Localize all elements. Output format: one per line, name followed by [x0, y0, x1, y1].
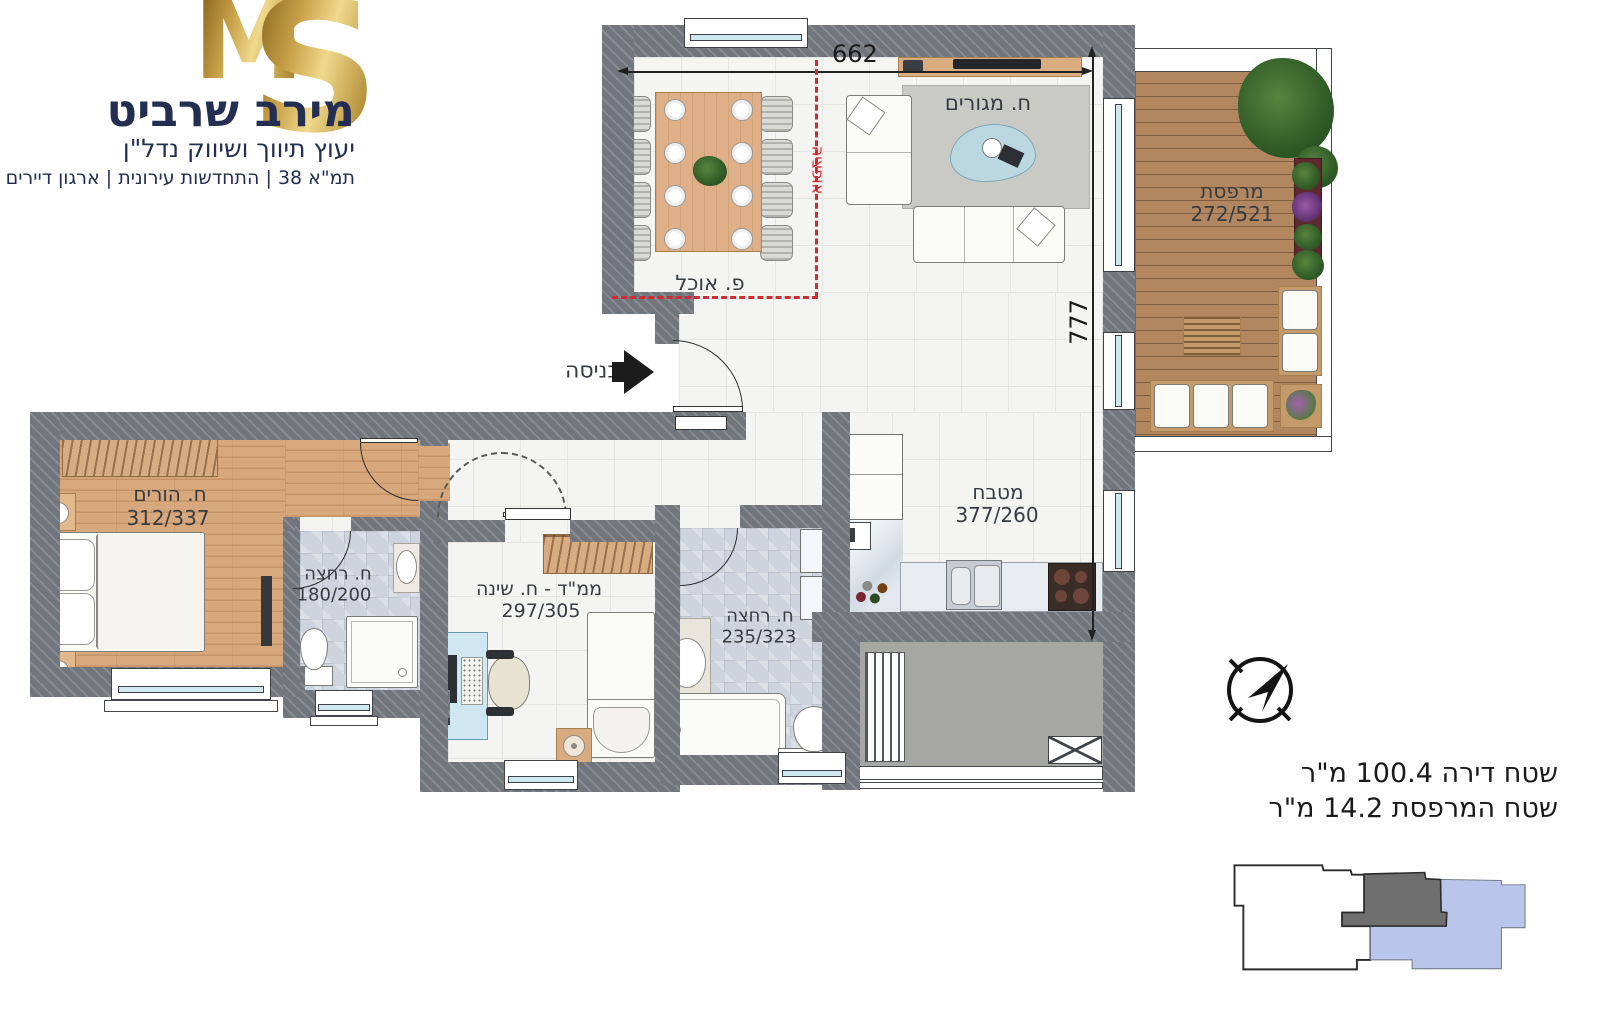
- plate: [731, 185, 753, 207]
- plate: [664, 142, 686, 164]
- planter-green-1: [1292, 162, 1320, 190]
- toilet-bowl: [300, 628, 328, 670]
- room-label-bath2: ח. רחצה: [726, 606, 794, 627]
- window-sill: [104, 700, 278, 712]
- room-label-kitchen: מטבח: [972, 480, 1023, 504]
- wall-segment: [30, 412, 60, 697]
- desk-chair: [488, 656, 530, 710]
- dining-chair: [760, 225, 793, 261]
- parents-door-leaf: [360, 438, 418, 443]
- brand-tagline: יעוץ תיווך ושיווק נדל"ן: [123, 134, 355, 163]
- option-label: אופציה: [809, 146, 828, 195]
- kitchen-sink: [946, 560, 1002, 610]
- entrance-arrow-head: [624, 350, 654, 394]
- compass-icon: [1222, 652, 1298, 728]
- sofa-cushion: [1232, 384, 1268, 428]
- balcony-area-text: שטח המרפסת 14.2 מ"ר: [1268, 793, 1558, 824]
- dimension-arrow: [617, 67, 628, 75]
- room-dims-bath1: 180/200: [297, 585, 372, 606]
- location-minimap: [1226, 852, 1532, 982]
- room-label-parents: ח. הורים: [133, 482, 206, 506]
- stove: [1048, 563, 1096, 611]
- brand-name: מירב שרביט: [107, 84, 356, 137]
- tub-rim: [668, 699, 780, 761]
- window: [1103, 490, 1135, 572]
- wall-segment: [351, 517, 423, 531]
- window: [684, 18, 808, 48]
- wall-segment: [30, 412, 746, 440]
- entrance-label: כניסה: [565, 359, 619, 384]
- side-table: [556, 728, 592, 764]
- window: [778, 752, 846, 784]
- planter-green-2: [1294, 224, 1322, 250]
- fridge-door-split: [844, 474, 902, 475]
- wall-segment: [812, 612, 1135, 642]
- room-dims-kitchen: 377/260: [955, 503, 1038, 527]
- room-label-living: ח. מגורים: [945, 91, 1031, 115]
- floor-entry-zone: [679, 292, 1103, 412]
- dining-chair: [760, 182, 793, 218]
- table-centerpiece-plant: [693, 156, 727, 186]
- burner: [1055, 590, 1067, 602]
- entry-door-leaf: [673, 406, 743, 412]
- blanket: [593, 707, 650, 753]
- roof-parapet: [845, 766, 1103, 780]
- roof-ladder: [865, 652, 905, 762]
- dimension-height-label: 777: [1065, 299, 1093, 345]
- brand-services: תמ"א 38 | התחדשות עירונית | ארגון דיירים: [6, 167, 355, 189]
- planter-green-3: [1292, 250, 1324, 280]
- chair-armrest: [486, 650, 514, 659]
- window: [1103, 98, 1135, 272]
- dining-chair: [760, 139, 793, 175]
- wall-segment: [655, 505, 680, 770]
- dining-chair: [760, 96, 793, 132]
- apartment-area-text: שטח דירה 100.4 מ"ר: [1301, 758, 1558, 789]
- dimension-line-width: [625, 71, 1085, 73]
- sink-basin: [951, 567, 971, 605]
- room-dims-balcony: 272/521: [1190, 202, 1273, 226]
- bed-fold: [588, 699, 654, 700]
- sofa-cushion: [1193, 384, 1229, 428]
- floorplan-page: M S מירב שרביט יעוץ תיווך ושיווק נדל"ן ת…: [0, 0, 1600, 1029]
- wall-tv: [261, 576, 272, 646]
- chair-armrest: [486, 707, 514, 716]
- dimension-arrow: [1088, 46, 1096, 57]
- window: [504, 760, 578, 790]
- option-boundary-horizontal: [612, 296, 818, 299]
- roof-skylight: [1048, 736, 1102, 764]
- burner: [1054, 569, 1070, 585]
- balcony-coffee-table: [1183, 316, 1241, 356]
- compass-north-arrow: [1248, 664, 1288, 712]
- window: [1103, 332, 1135, 410]
- sofa-seam: [964, 207, 965, 262]
- bowl-center: [571, 743, 577, 749]
- plate: [664, 185, 686, 207]
- window: [111, 668, 271, 700]
- room-label-dining: פ. אוכל: [675, 271, 744, 295]
- shower-drain: [398, 668, 407, 677]
- balcony-parapet-bottom: [1123, 436, 1332, 452]
- room-label-bath1: ח. רחצה: [304, 564, 372, 585]
- sofa-cushion: [1282, 290, 1318, 330]
- safe-room-door-leaf: [505, 508, 571, 520]
- burner: [1075, 571, 1087, 583]
- single-bed: [587, 612, 655, 758]
- tv: [953, 59, 1041, 69]
- sink: [396, 550, 417, 584]
- plate: [731, 228, 753, 250]
- room-label-safe-bedroom: ממ"ד - ח. שינה: [476, 578, 602, 600]
- blanket: [96, 534, 204, 649]
- wall-segment: [570, 520, 660, 542]
- fridge: [843, 434, 903, 520]
- sofa-seam: [1013, 207, 1014, 262]
- window: [315, 690, 373, 716]
- wall-segment: [420, 440, 448, 446]
- dimension-width-label: 662: [832, 40, 878, 68]
- plate: [664, 99, 686, 121]
- plate: [664, 228, 686, 250]
- plate: [731, 99, 753, 121]
- room-dims-parents: 312/337: [126, 506, 209, 530]
- dimension-arrow: [1088, 630, 1096, 641]
- shower: [346, 616, 418, 688]
- wall-segment: [1103, 642, 1135, 792]
- roof-parapet-line: [845, 782, 1103, 789]
- wall-segment: [420, 520, 505, 542]
- window-sill: [310, 716, 378, 726]
- sofa-cushion: [1282, 333, 1318, 372]
- keyboard: [461, 657, 483, 705]
- burner: [1073, 588, 1089, 604]
- plate: [731, 142, 753, 164]
- double-bed: [40, 532, 205, 652]
- room-dims-safe-bedroom: 297/305: [502, 600, 581, 622]
- wall-segment: [283, 517, 295, 531]
- parents-closet: [62, 437, 218, 477]
- sofa-cushion: [1154, 384, 1190, 428]
- room-label-balcony: מרפסת: [1200, 179, 1264, 203]
- sofa-seam: [847, 152, 911, 153]
- entry-threshold: [675, 416, 727, 430]
- sink-basin: [974, 565, 1000, 607]
- room-dims-bath2: 235/323: [722, 627, 797, 648]
